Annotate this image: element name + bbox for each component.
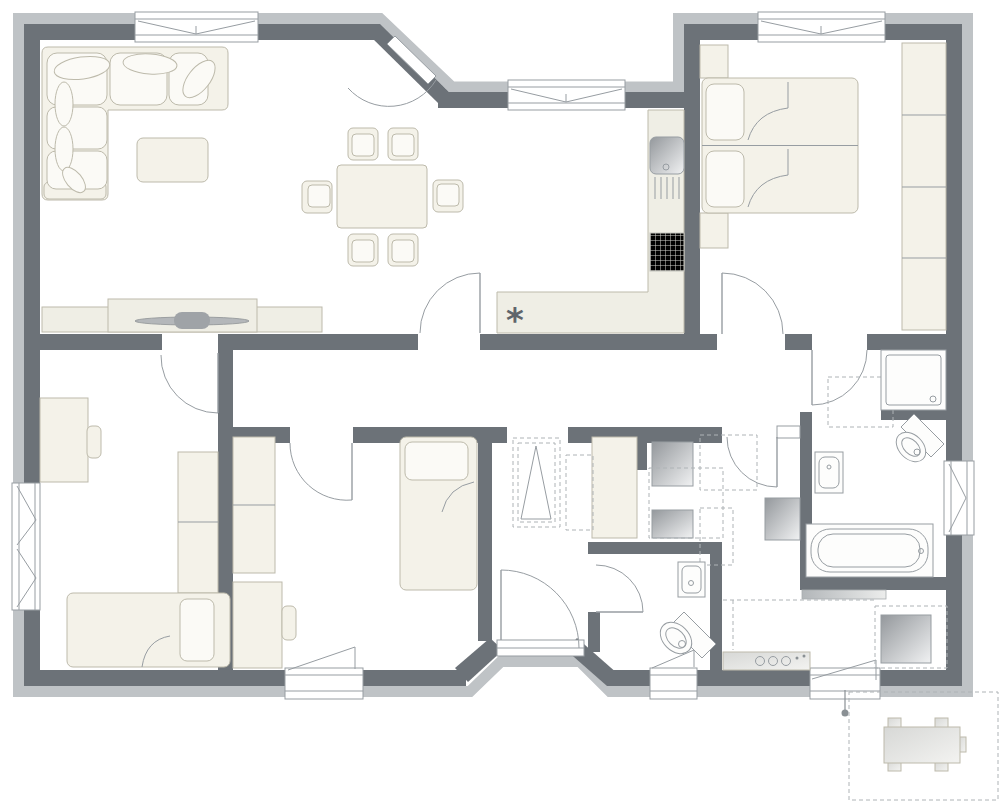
double-bed xyxy=(702,78,858,213)
cooktop xyxy=(650,233,684,271)
pillow xyxy=(405,442,468,480)
dining-area xyxy=(302,128,463,266)
bedroom-wardrobe xyxy=(902,43,946,330)
garden-table xyxy=(884,718,966,771)
wall-wc-top xyxy=(588,542,710,554)
desk-chair xyxy=(282,606,296,640)
boiler xyxy=(881,615,931,663)
coffee-table xyxy=(137,138,208,182)
door-dining-to-hallway xyxy=(420,273,480,333)
outside xyxy=(842,690,999,800)
front-door xyxy=(497,570,584,656)
door-bedroom xyxy=(722,273,783,334)
pillow xyxy=(55,127,73,171)
tech-dashed-line xyxy=(723,600,875,650)
planned-item-dashed xyxy=(566,455,593,530)
entrance-hall xyxy=(513,438,560,527)
single-bed xyxy=(400,437,477,590)
washer xyxy=(652,442,693,486)
wall-top-living-right xyxy=(258,24,380,40)
bathtub xyxy=(806,524,933,577)
room-left xyxy=(40,398,230,667)
nightstand-bottom xyxy=(700,213,728,248)
desk-chair xyxy=(87,426,101,458)
tall-cabinet xyxy=(592,437,637,538)
floor-plan: * xyxy=(0,0,1000,812)
wall-bath-bottom xyxy=(800,577,947,590)
wall-room-middle-right xyxy=(478,427,492,641)
wall-hall-top-2 xyxy=(233,334,418,350)
wall-bottom-left-1 xyxy=(363,670,466,686)
pillow xyxy=(706,84,744,140)
radiator xyxy=(802,590,886,599)
floor-plan-canvas: * xyxy=(0,0,1000,812)
wall-kitchen-bedroom-divider xyxy=(684,24,700,334)
tv-base xyxy=(174,312,210,329)
wc-toilet xyxy=(654,612,716,660)
wardrobe xyxy=(178,452,218,593)
table-top xyxy=(884,727,960,763)
door-corridor xyxy=(727,437,777,487)
wall-top-kitchen-right xyxy=(625,92,684,108)
planned-item-dashed xyxy=(700,435,757,490)
wall-wc-left-lower xyxy=(588,612,600,652)
wall-right-upper xyxy=(946,24,962,463)
pillow xyxy=(706,151,744,207)
water-heater xyxy=(765,498,800,540)
window-bedroom-top xyxy=(758,12,885,42)
wall-left-lower xyxy=(24,608,40,686)
wall-hall-top-1 xyxy=(40,334,162,350)
shower xyxy=(881,350,946,410)
dryer xyxy=(652,510,693,538)
window-room-left-south xyxy=(285,647,363,699)
wall-nook-stub xyxy=(637,443,647,470)
dining-table xyxy=(337,165,427,228)
planned-wardrobe-dashed xyxy=(513,438,560,527)
nightstand-top xyxy=(700,45,728,78)
wall-top-kitchen-left xyxy=(438,92,508,108)
kitchen-sink xyxy=(650,137,684,174)
wall-hall-top-4 xyxy=(700,334,717,350)
bedroom xyxy=(700,43,946,330)
tech-room xyxy=(723,600,947,670)
living-room xyxy=(42,47,322,332)
wall-bottom-right-1 xyxy=(880,670,962,686)
wc-washbasin xyxy=(678,562,705,597)
desk xyxy=(40,398,88,482)
window-kitchen-top xyxy=(508,80,625,110)
wall-bath-top xyxy=(867,334,946,350)
wall-left-upper xyxy=(24,24,40,485)
desk xyxy=(233,582,282,668)
room-middle xyxy=(233,437,477,668)
bath-toilet xyxy=(890,414,944,468)
window-living-top xyxy=(135,12,258,42)
window-room-left-west xyxy=(12,483,40,610)
wall-wc-right xyxy=(710,542,722,678)
bathroom xyxy=(802,350,946,599)
window-bathroom-right xyxy=(944,461,974,535)
corridor-door-jamb xyxy=(777,426,800,438)
single-bed xyxy=(67,593,230,667)
wall-top-living-left xyxy=(24,24,135,40)
cooktop-marker: * xyxy=(506,300,524,340)
door-wc xyxy=(596,565,643,612)
wall-right-lower xyxy=(946,533,962,686)
wall-hall-top-5 xyxy=(785,334,812,350)
wall-nook-top xyxy=(568,427,722,443)
terrace-diagonal-door xyxy=(348,36,436,106)
tv-sideboard xyxy=(42,299,322,332)
terrace xyxy=(849,692,998,800)
wall-top-bedroom-left xyxy=(684,24,758,40)
bath-washbasin xyxy=(815,452,843,493)
kitchen: * xyxy=(497,110,684,340)
door-room-middle xyxy=(290,443,352,500)
wall-bottom-left-2 xyxy=(24,670,285,686)
wardrobe xyxy=(233,437,275,573)
counter-unit xyxy=(723,652,810,670)
window-wc-south xyxy=(650,650,697,699)
pillow xyxy=(55,82,73,126)
guest-wc xyxy=(654,562,716,660)
door-living-to-room-left xyxy=(161,353,218,413)
pillow xyxy=(180,599,214,661)
